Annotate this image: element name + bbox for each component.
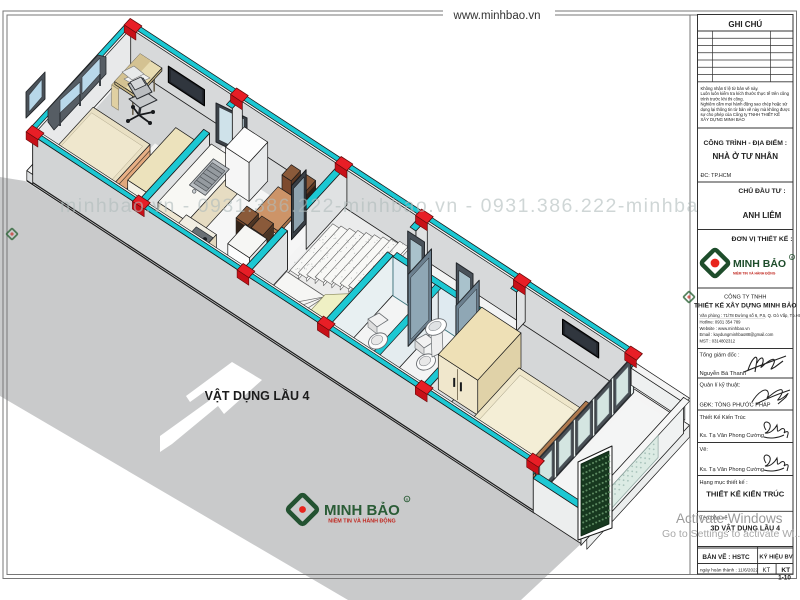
svg-text:Email : kaydungminhbao88@gmail: Email : kaydungminhbao88@gmail.com	[700, 332, 774, 337]
svg-text:www.minhbao.vn: www.minhbao.vn	[453, 10, 541, 22]
svg-text:NIỀM TIN VÀ HÀNH ĐỘNG: NIỀM TIN VÀ HÀNH ĐỘNG	[328, 517, 395, 525]
svg-text:MST : 0314802312: MST : 0314802312	[700, 339, 736, 344]
svg-text:Quản lí kỹ thuật:: Quản lí kỹ thuật:	[700, 383, 741, 389]
svg-text:NHÀ Ở TƯ NHÂN: NHÀ Ở TƯ NHÂN	[713, 152, 779, 161]
svg-text:Vẽ:: Vẽ:	[700, 447, 709, 453]
svg-text:Go to Settings to activate Wi.: Go to Settings to activate Wi...	[662, 528, 800, 540]
svg-text:ANH LIÊM: ANH LIÊM	[743, 211, 782, 220]
svg-text:MINH BẢO: MINH BẢO	[733, 257, 786, 270]
svg-text:NIỀM TIN VÀ HÀNH ĐỘNG: NIỀM TIN VÀ HÀNH ĐỘNG	[733, 271, 776, 276]
svg-text:Thiết Kế Kiến Trúc: Thiết Kế Kiến Trúc	[700, 415, 746, 421]
svg-text:KÝ HIỆU BV: KÝ HIỆU BV	[759, 553, 792, 561]
svg-text:VẬT DỤNG LẦU 4: VẬT DỤNG LẦU 4	[205, 388, 310, 403]
svg-text:MINH BẢO: MINH BẢO	[324, 502, 400, 519]
svg-text:GHI CHÚ: GHI CHÚ	[728, 20, 762, 29]
svg-text:Hạng mục thiết kế :: Hạng mục thiết kế :	[700, 480, 749, 486]
svg-text:Tổng giám đốc :: Tổng giám đốc :	[700, 352, 741, 359]
svg-text:KT: KT	[762, 568, 770, 574]
svg-text:ĐC: TP.HCM: ĐC: TP.HCM	[701, 173, 732, 179]
svg-text:minhbao.vn - 0931.386.222-minh: minhbao.vn - 0931.386.222-minhbao.vn - 0…	[60, 195, 742, 217]
svg-text:CÔNG TY TNHH: CÔNG TY TNHH	[724, 294, 766, 301]
svg-text:ngày hoàn thành : 11/6/2022: ngày hoàn thành : 11/6/2022	[700, 568, 759, 573]
svg-text:XÂY DỰNG MINH BẢO: XÂY DỰNG MINH BẢO	[701, 117, 746, 122]
svg-text:1-10: 1-10	[778, 575, 791, 582]
svg-text:Website : www.minhbao.vn: Website : www.minhbao.vn	[700, 326, 751, 331]
svg-text:Activate Windows: Activate Windows	[676, 511, 783, 526]
svg-text:Văn phòng : 71/78 Đường số 6,: Văn phòng : 71/78 Đường số 6, P.5, Q. Gò…	[700, 313, 800, 318]
svg-text:Hotline: 0931 354 789: Hotline: 0931 354 789	[700, 319, 742, 324]
svg-text:THIẾT KẾ KIẾN TRÚC: THIẾT KẾ KIẾN TRÚC	[706, 489, 785, 499]
svg-text:R: R	[406, 498, 409, 502]
svg-text:Ks. Tạ Văn Phong Cường: Ks. Tạ Văn Phong Cường	[700, 433, 765, 439]
svg-text:Nguyễn Bá Thanh: Nguyễn Bá Thanh	[700, 370, 747, 377]
svg-text:KT: KT	[781, 567, 790, 574]
svg-text:CÔNG TRÌNH - ĐỊA ĐIỂM :: CÔNG TRÌNH - ĐỊA ĐIỂM :	[703, 138, 787, 147]
svg-text:Ks. Tạ Văn Phong Cường: Ks. Tạ Văn Phong Cường	[700, 467, 765, 473]
svg-text:BẢN VẼ : HSTC: BẢN VẼ : HSTC	[702, 552, 750, 561]
